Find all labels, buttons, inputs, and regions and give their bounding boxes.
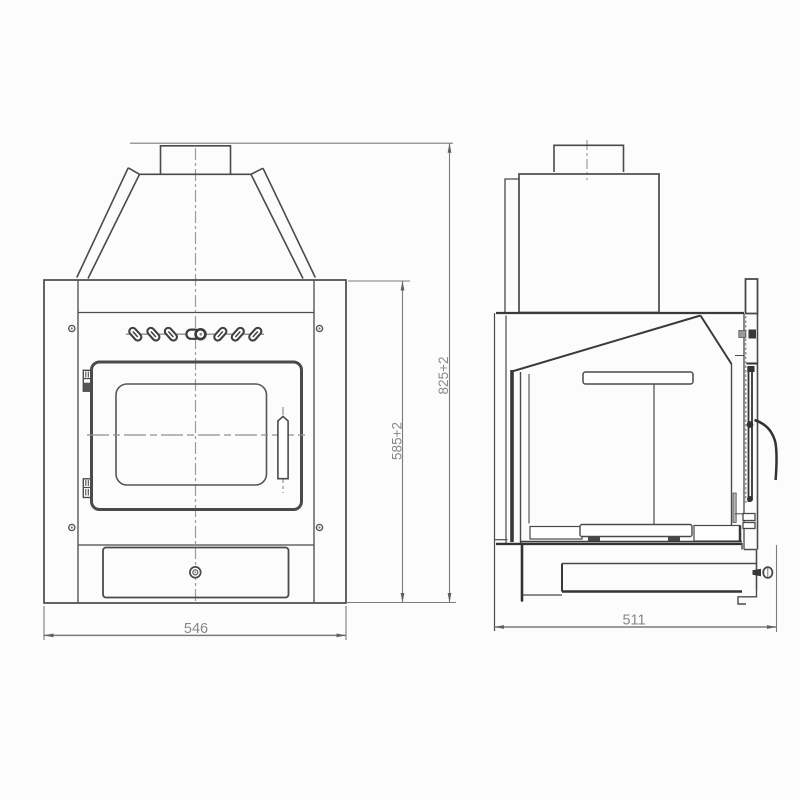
svg-text:825+2: 825+2 [436,357,451,395]
svg-text:511: 511 [622,613,645,629]
svg-text:546: 546 [184,621,208,637]
svg-text:585+2: 585+2 [390,422,405,460]
